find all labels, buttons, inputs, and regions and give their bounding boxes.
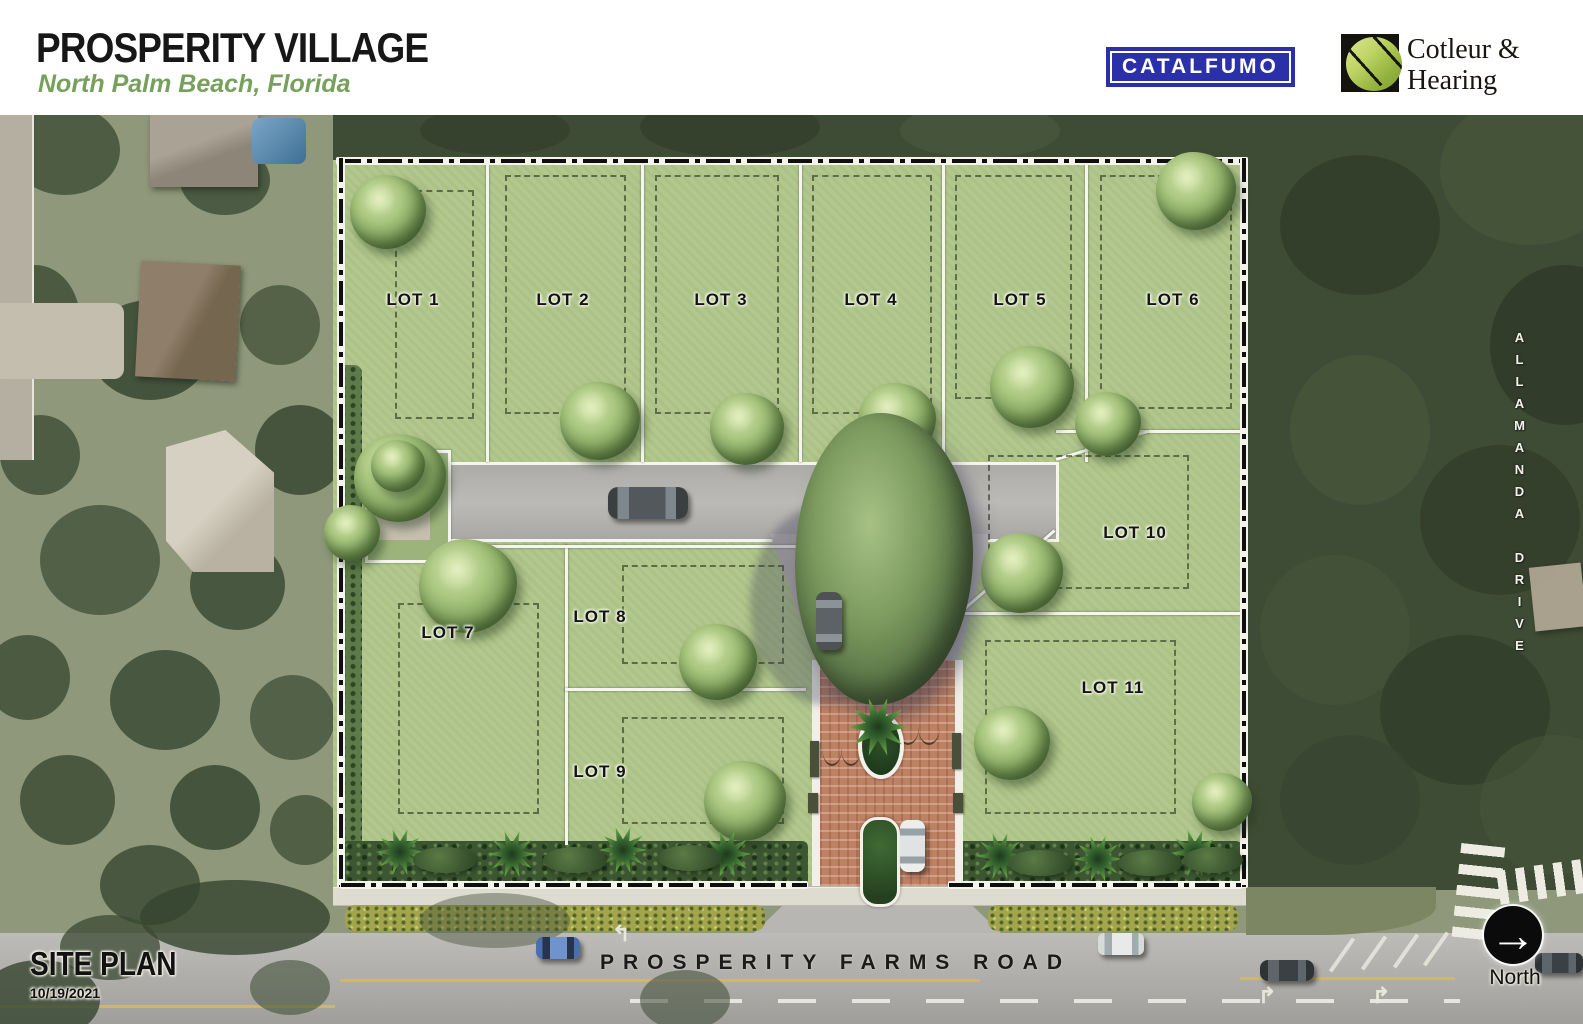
shrub (1008, 850, 1072, 876)
plan-date: 10/19/2021 (30, 985, 202, 1001)
catalfumo-logo: CATALFUMO (1106, 47, 1295, 87)
page-subtitle: North Palm Beach, Florida (38, 70, 351, 99)
street-label-prosperity-farms: PROSPERITY FARMS ROAD (600, 951, 1071, 975)
lot-line (799, 160, 802, 462)
shrub (413, 847, 477, 873)
car-icon (900, 820, 925, 872)
car-icon (816, 592, 842, 650)
boundary-line-top (336, 157, 1248, 165)
car-icon (536, 937, 580, 959)
house-roof (1529, 562, 1583, 631)
lot-label-7: LOT 7 (421, 623, 474, 643)
lot-label-4: LOT 4 (844, 290, 897, 310)
lot-line (565, 545, 568, 845)
entry-median (860, 817, 900, 907)
boundary-line-bottom (340, 881, 808, 889)
turn-arrow-marking: ↱ (1372, 983, 1390, 1009)
gate-post (953, 793, 963, 813)
gate-post (952, 733, 961, 769)
house-roof (150, 115, 258, 187)
swimming-pool (252, 118, 306, 164)
cotleur-logo-text: Cotleur & Hearing (1407, 34, 1520, 96)
site-plan-sheet: PROSPERITY VILLAGE North Palm Beach, Flo… (0, 0, 1583, 1024)
street-label-allamanda: ALLAMANDA DRIVE (1512, 330, 1527, 660)
page-title: PROSPERITY VILLAGE (36, 24, 428, 72)
lot-line (955, 612, 1242, 615)
lot-line (565, 688, 806, 691)
boundary-line-right (1240, 157, 1248, 888)
shrub (543, 847, 607, 873)
lot-label-10: LOT 10 (1103, 523, 1167, 543)
shrub (658, 845, 722, 871)
house-roof (135, 260, 241, 381)
shrub (1183, 847, 1243, 873)
plan-title-block: SITE PLAN 10/19/2021 (30, 945, 202, 1001)
lot-label-3: LOT 3 (694, 290, 747, 310)
cotleur-hearing-logo: Cotleur & Hearing (1341, 34, 1520, 96)
lot-line (448, 545, 806, 548)
lot-line (486, 160, 489, 462)
lot-label-6: LOT 6 (1146, 290, 1199, 310)
boundary-line-bottom (948, 881, 1242, 889)
lot-label-11: LOT 11 (1082, 678, 1145, 698)
lot-line (942, 160, 945, 462)
site-plan-map: ↰ ↱ ↱ (0, 115, 1583, 1024)
turn-arrow-marking: ↰ (612, 921, 630, 947)
car-icon (608, 487, 688, 519)
cotleur-sphere-icon (1341, 34, 1399, 92)
side-street (0, 115, 34, 460)
north-label: North (1455, 966, 1575, 990)
turn-arrow-marking: ↱ (1258, 983, 1276, 1009)
street-hedge (988, 905, 1238, 931)
lot-label-2: LOT 2 (536, 290, 589, 310)
gate-post (808, 793, 818, 813)
lot-label-5: LOT 5 (993, 290, 1046, 310)
car-icon (1260, 960, 1314, 981)
lot-label-8: LOT 8 (573, 607, 626, 627)
catalfumo-logo-text: CATALFUMO (1110, 51, 1291, 83)
plan-label: SITE PLAN (30, 945, 177, 983)
lot-label-1: LOT 1 (386, 290, 439, 310)
car-icon (1098, 933, 1144, 955)
header: PROSPERITY VILLAGE North Palm Beach, Flo… (0, 0, 1583, 115)
shrub (1118, 850, 1182, 876)
lot-label-9: LOT 9 (573, 762, 626, 782)
entry-sidewalk (955, 660, 963, 886)
lane-marking (630, 999, 1460, 1003)
corner-island (1246, 887, 1436, 935)
north-arrow-icon: → (1484, 906, 1542, 964)
lot-line (641, 160, 644, 462)
driveway (0, 303, 124, 379)
gate-post (810, 741, 819, 777)
